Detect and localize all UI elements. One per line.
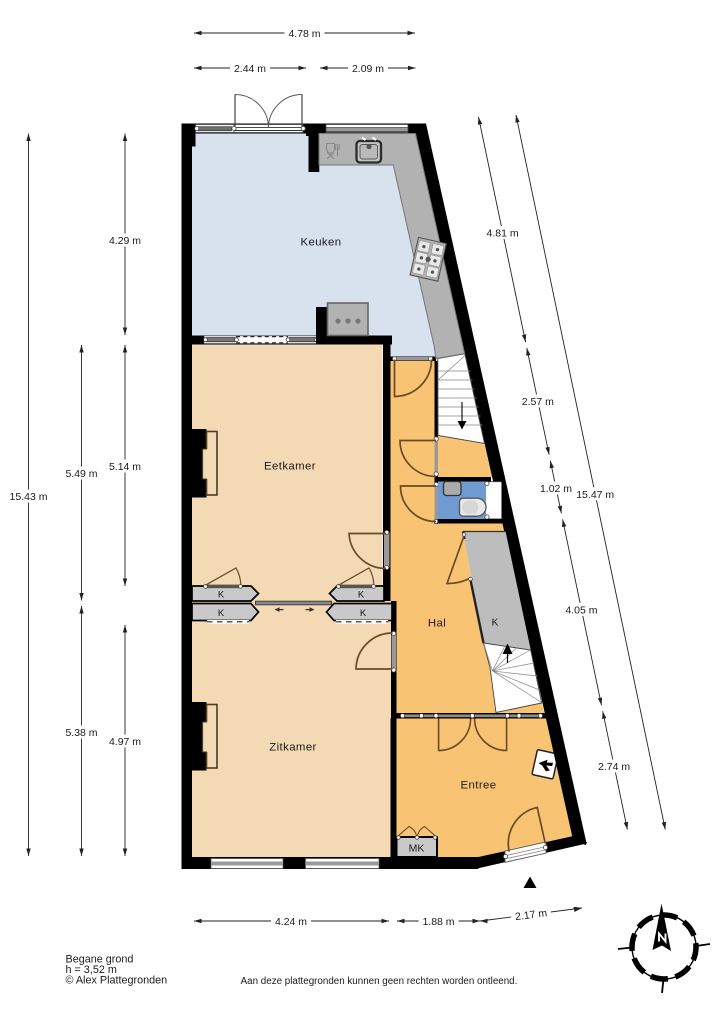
- svg-text:Keuken: Keuken: [300, 237, 341, 249]
- svg-text:4.29 m: 4.29 m: [109, 235, 141, 247]
- svg-text:5.38 m: 5.38 m: [65, 727, 97, 739]
- svg-text:15.47 m: 15.47 m: [576, 489, 614, 501]
- svg-text:Aan deze plattegronden kunnen: Aan deze plattegronden kunnen geen recht…: [241, 976, 518, 987]
- svg-text:© Alex Plattegronden: © Alex Plattegronden: [66, 975, 168, 987]
- svg-text:5.49 m: 5.49 m: [65, 468, 97, 480]
- svg-text:2.44 m: 2.44 m: [234, 63, 266, 75]
- svg-text:4.81 m: 4.81 m: [487, 228, 519, 240]
- svg-text:1.88 m: 1.88 m: [422, 916, 454, 928]
- svg-text:4.97 m: 4.97 m: [109, 736, 141, 748]
- svg-text:15.43 m: 15.43 m: [10, 491, 48, 503]
- svg-text:K: K: [360, 608, 367, 619]
- svg-text:K: K: [358, 590, 365, 601]
- svg-text:K: K: [218, 608, 225, 619]
- svg-text:Hal: Hal: [428, 618, 446, 630]
- svg-text:4.78 m: 4.78 m: [288, 28, 320, 40]
- svg-text:4.05 m: 4.05 m: [565, 604, 597, 616]
- svg-text:2.09 m: 2.09 m: [352, 63, 384, 75]
- svg-text:Entree: Entree: [461, 780, 497, 792]
- svg-text:Eetkamer: Eetkamer: [264, 461, 316, 473]
- svg-text:5.14 m: 5.14 m: [109, 461, 141, 473]
- svg-text:4.24 m: 4.24 m: [275, 916, 307, 928]
- svg-text:1.02 m: 1.02 m: [540, 483, 572, 495]
- svg-text:MK: MK: [409, 843, 425, 855]
- svg-text:K: K: [218, 590, 225, 601]
- svg-text:K: K: [492, 618, 499, 629]
- svg-text:Zitkamer: Zitkamer: [269, 742, 317, 754]
- svg-text:2.74 m: 2.74 m: [598, 761, 630, 773]
- svg-text:2.57 m: 2.57 m: [522, 396, 554, 408]
